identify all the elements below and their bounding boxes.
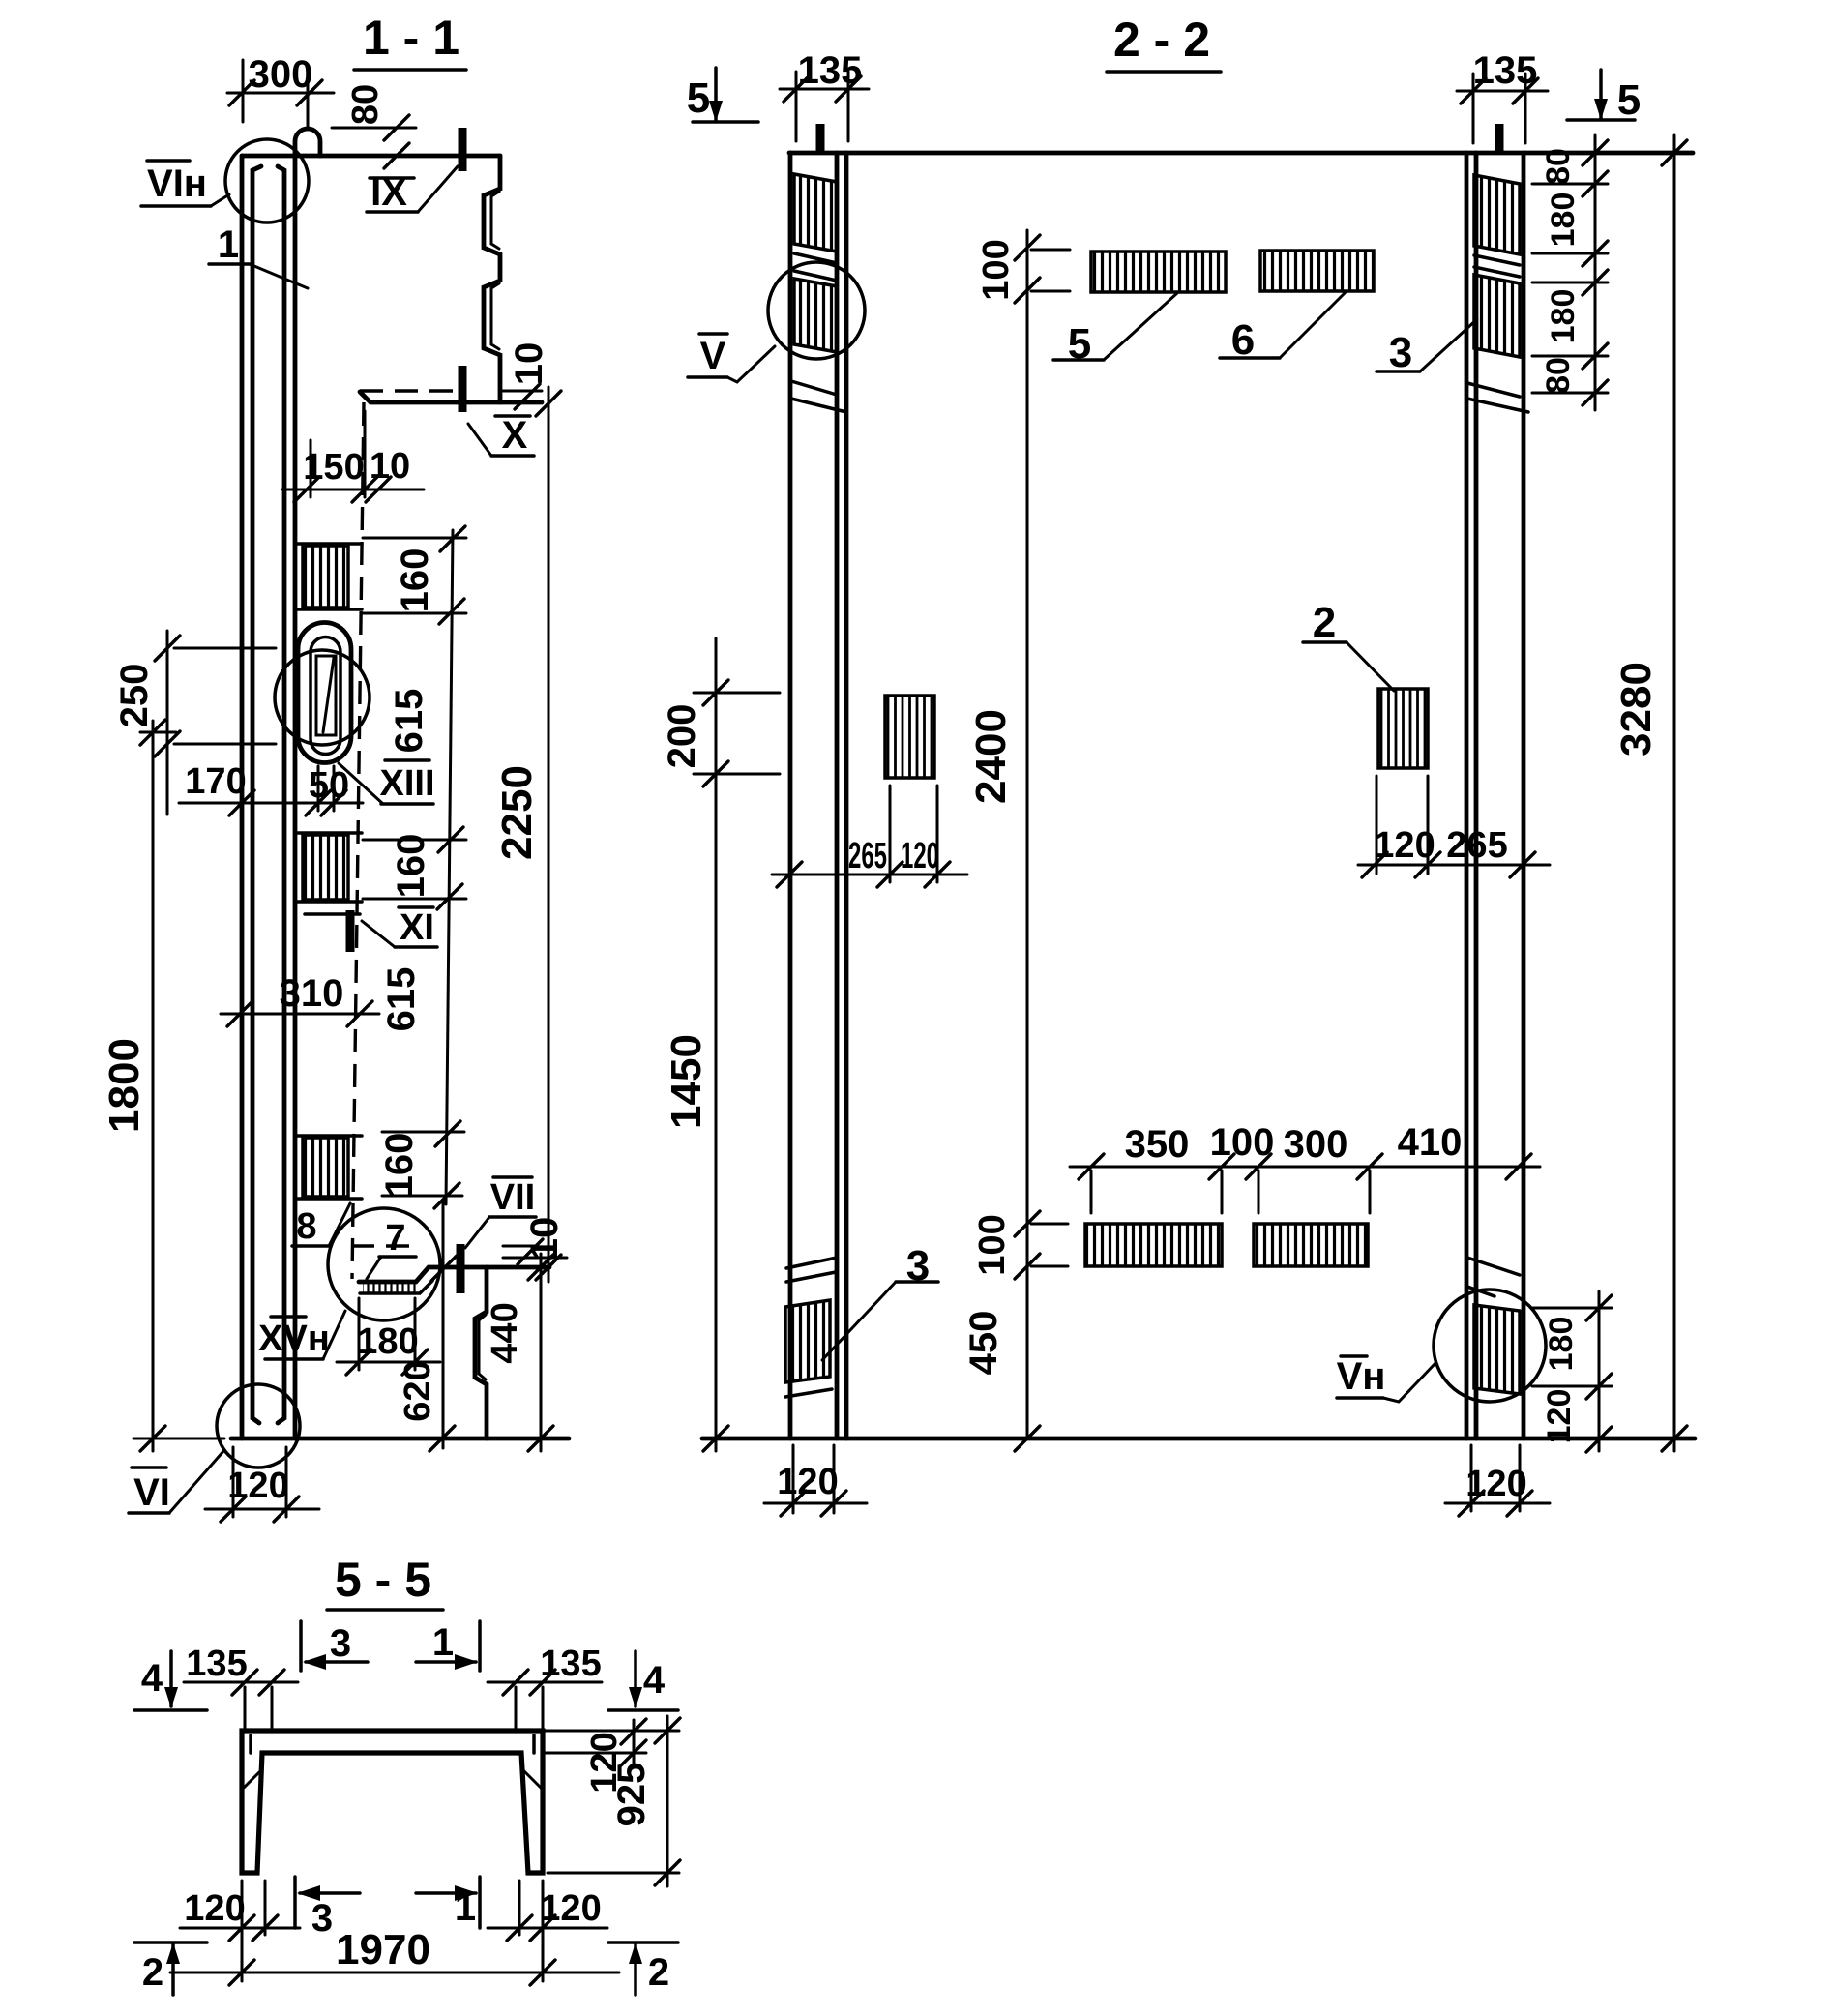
svg-text:160: 160 [394,548,436,613]
svg-text:450: 450 [962,1311,1005,1376]
svg-text:1: 1 [218,223,239,266]
svg-text:1: 1 [455,1886,476,1929]
svg-text:10: 10 [523,1217,566,1260]
svg-text:135: 135 [540,1644,601,1684]
svg-text:80: 80 [1540,148,1577,185]
svg-text:2: 2 [142,1951,163,1994]
svg-text:615: 615 [388,689,430,754]
svg-text:300: 300 [249,53,313,96]
svg-text:200: 200 [661,704,703,769]
svg-text:2 - 2: 2 - 2 [1113,13,1210,67]
svg-text:10: 10 [370,446,410,487]
svg-text:120: 120 [227,1466,288,1506]
svg-text:VIн: VIн [147,163,207,205]
svg-text:X: X [502,414,528,457]
svg-text:120: 120 [1465,1464,1526,1504]
svg-text:4: 4 [141,1657,163,1700]
svg-text:8: 8 [296,1206,316,1247]
svg-text:1 - 1: 1 - 1 [363,11,459,65]
svg-text:5 - 5: 5 - 5 [335,1553,431,1607]
svg-text:2: 2 [648,1951,669,1994]
svg-text:2250: 2250 [493,765,541,860]
svg-text:160: 160 [390,834,432,899]
svg-text:Vн: Vн [1337,1355,1386,1398]
svg-text:1450: 1450 [663,1034,710,1129]
svg-text:120: 120 [540,1888,601,1929]
svg-text:350: 350 [1125,1123,1190,1166]
svg-text:2400: 2400 [967,709,1015,804]
svg-text:135: 135 [1473,49,1538,92]
svg-text:1970: 1970 [336,1926,430,1973]
svg-text:1800: 1800 [101,1038,148,1133]
svg-text:265: 265 [1446,825,1507,866]
svg-text:100: 100 [976,239,1017,300]
svg-text:VI: VI [133,1471,170,1514]
svg-text:V: V [700,335,726,377]
svg-text:80: 80 [345,84,386,125]
svg-text:120: 120 [901,836,939,876]
svg-text:180: 180 [1545,193,1582,248]
svg-text:120: 120 [184,1888,245,1929]
svg-text:150: 150 [303,447,364,488]
svg-text:5: 5 [1617,76,1641,124]
svg-text:250: 250 [113,664,156,728]
svg-text:XVн: XVн [258,1319,330,1359]
svg-text:135: 135 [798,49,863,92]
svg-text:180: 180 [1545,289,1582,344]
svg-text:4: 4 [643,1659,666,1702]
svg-text:50: 50 [309,765,349,806]
svg-text:VII: VII [490,1177,535,1218]
svg-text:410: 410 [1398,1121,1463,1164]
svg-text:3280: 3280 [1613,662,1660,756]
svg-text:3: 3 [1389,329,1412,376]
svg-text:440: 440 [485,1302,525,1363]
svg-text:7: 7 [385,1218,405,1259]
svg-text:XI: XI [400,907,434,948]
svg-text:925: 925 [610,1763,653,1827]
svg-text:135: 135 [186,1644,247,1684]
svg-text:180: 180 [357,1321,418,1362]
svg-text:180: 180 [1543,1317,1580,1372]
svg-text:120: 120 [777,1462,838,1502]
svg-text:5: 5 [687,74,710,122]
svg-text:XIII: XIII [379,763,434,804]
svg-text:300: 300 [1284,1123,1348,1166]
svg-text:3: 3 [330,1622,351,1665]
svg-text:160: 160 [378,1133,421,1198]
svg-text:265: 265 [848,836,887,876]
svg-text:1: 1 [432,1621,454,1664]
svg-text:120: 120 [1374,825,1435,866]
svg-text:620: 620 [398,1360,438,1421]
svg-text:3: 3 [311,1897,333,1940]
svg-text:310: 310 [280,972,344,1015]
svg-text:10: 10 [508,342,550,386]
svg-text:100: 100 [972,1214,1013,1275]
svg-text:170: 170 [185,761,246,802]
svg-text:100: 100 [1210,1121,1275,1164]
svg-text:120: 120 [1541,1389,1578,1444]
svg-text:IX: IX [370,171,407,214]
svg-text:80: 80 [1540,357,1577,394]
svg-text:615: 615 [380,967,423,1032]
svg-text:2: 2 [1313,599,1336,646]
